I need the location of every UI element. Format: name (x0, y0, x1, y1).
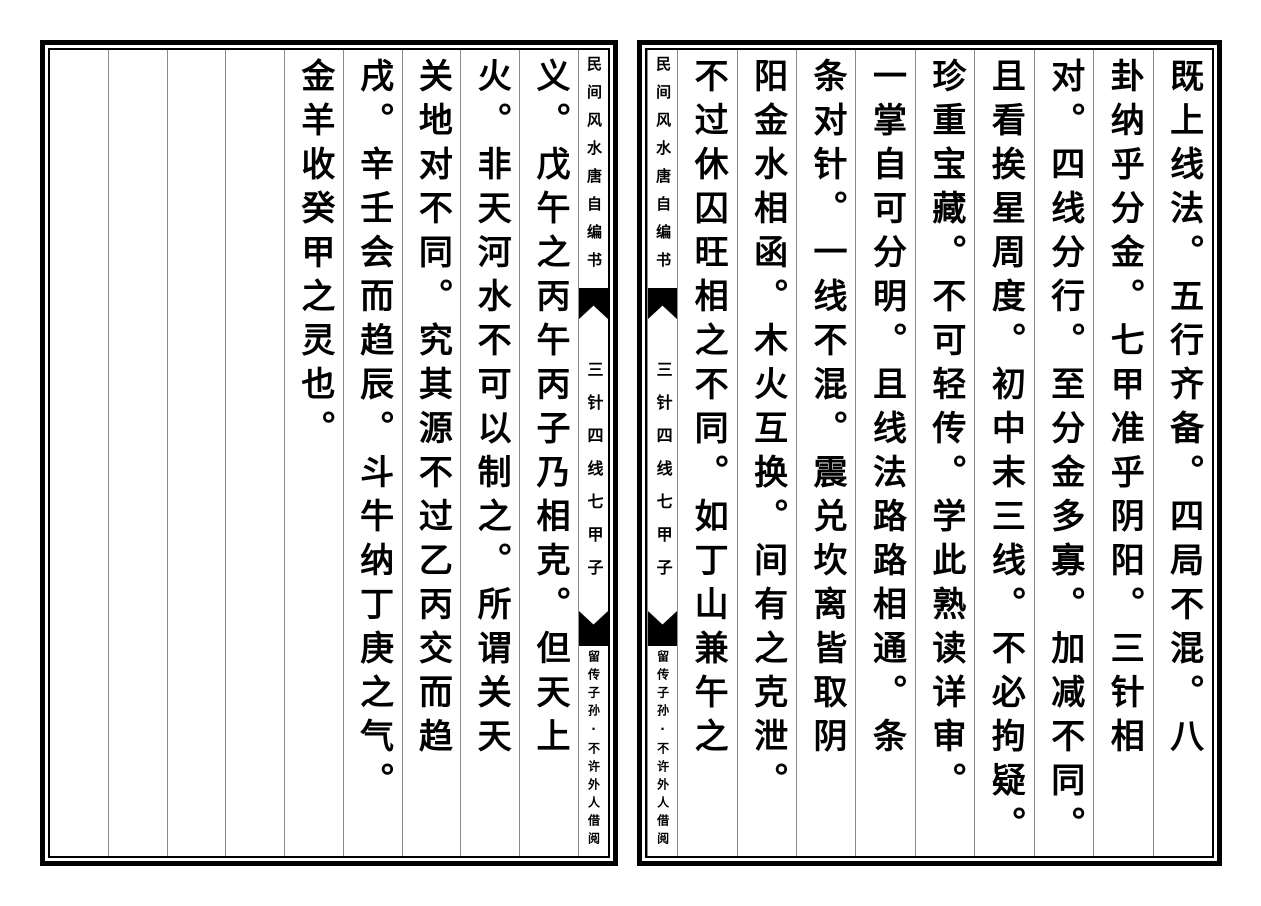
left-page: 民间风水唐自编书 三针四线七甲子 留传子孙·不许外人借阅 义。戊午之丙午丙子乃相… (40, 40, 618, 866)
column-text: 对。四线分行。至分金多寡。加减不同。 (1046, 58, 1082, 856)
column-text: 义。戊午之丙午丙子乃相克。但天上 (531, 58, 567, 856)
chapter-title: 三针四线七甲子 (655, 361, 671, 592)
text-column: 且看挨星周度。初中末三线。不必拘疑。 (974, 50, 1033, 856)
left-page-frame: 民间风水唐自编书 三针四线七甲子 留传子孙·不许外人借阅 义。戊午之丙午丙子乃相… (48, 48, 610, 858)
book-title: 民间风水唐自编书 (586, 56, 601, 280)
right-page: 既上线法。五行齐备。四局不混。八 卦纳乎分金。七甲准乎阴阳。三针相 对。四线分行… (637, 40, 1222, 866)
spine-column: 民间风水唐自编书 三针四线七甲子 留传子孙·不许外人借阅 (578, 50, 608, 856)
column-text: 不过休囚旺相之不同。如丁山兼午之 (689, 58, 725, 856)
text-column: 阳金水相函。木火互换。间有之克泄。 (737, 50, 796, 856)
chapter-title: 三针四线七甲子 (586, 361, 602, 592)
column-text: 既上线法。五行齐备。四局不混。八 (1165, 58, 1201, 856)
spine-column: 民间风水唐自编书 三针四线七甲子 留传子孙·不许外人借阅 (647, 50, 677, 856)
column-text: 阳金水相函。木火互换。间有之克泄。 (749, 58, 785, 856)
column-text: 火。非天河水不可以制之。所谓关天 (472, 58, 508, 856)
book-title: 民间风水唐自编书 (655, 56, 670, 280)
fishtail-mark-top-icon (648, 288, 677, 319)
spine-note: 留传子孙·不许外人借阅 (657, 650, 669, 850)
column-text: 且看挨星周度。初中末三线。不必拘疑。 (987, 58, 1023, 856)
column-text: 一掌自可分明。且线法路路相通。条 (868, 58, 904, 856)
text-column: 一掌自可分明。且线法路路相通。条 (855, 50, 914, 856)
column-text: 戌。辛壬会而趋辰。斗牛纳丁庚之气。 (355, 58, 391, 856)
text-column: 义。戊午之丙午丙子乃相克。但天上 (519, 50, 578, 856)
column-text: 金羊收癸甲之灵也。 (296, 58, 332, 856)
fishtail-mark-bottom-icon (579, 611, 608, 646)
spine-note: 留传子孙·不许外人借阅 (588, 650, 600, 850)
text-column: 戌。辛壬会而趋辰。斗牛纳丁庚之气。 (343, 50, 402, 856)
fishtail-mark-top-icon (579, 288, 608, 319)
right-page-frame: 既上线法。五行齐备。四局不混。八 卦纳乎分金。七甲准乎阴阳。三针相 对。四线分行… (645, 48, 1214, 858)
column-text: 关地对不同。究其源不过乙丙交而趋 (414, 58, 450, 856)
empty-column (167, 50, 226, 856)
column-text: 卦纳乎分金。七甲准乎阴阳。三针相 (1106, 58, 1142, 856)
text-column: 条对针。一线不混。震兑坎离皆取阴 (796, 50, 855, 856)
text-column: 对。四线分行。至分金多寡。加减不同。 (1034, 50, 1093, 856)
column-text: 条对针。一线不混。震兑坎离皆取阴 (808, 58, 844, 856)
empty-column (225, 50, 284, 856)
empty-column (108, 50, 167, 856)
text-column: 不过休囚旺相之不同。如丁山兼午之 (677, 50, 736, 856)
text-column: 火。非天河水不可以制之。所谓关天 (460, 50, 519, 856)
text-column: 关地对不同。究其源不过乙丙交而趋 (402, 50, 461, 856)
text-column: 既上线法。五行齐备。四局不混。八 (1153, 50, 1212, 856)
text-column: 金羊收癸甲之灵也。 (284, 50, 343, 856)
column-text: 珍重宝藏。不可轻传。学此熟读详审。 (927, 58, 963, 856)
empty-column (50, 50, 108, 856)
fishtail-mark-bottom-icon (648, 611, 677, 646)
text-column: 珍重宝藏。不可轻传。学此熟读详审。 (915, 50, 974, 856)
text-column: 卦纳乎分金。七甲准乎阴阳。三针相 (1093, 50, 1152, 856)
